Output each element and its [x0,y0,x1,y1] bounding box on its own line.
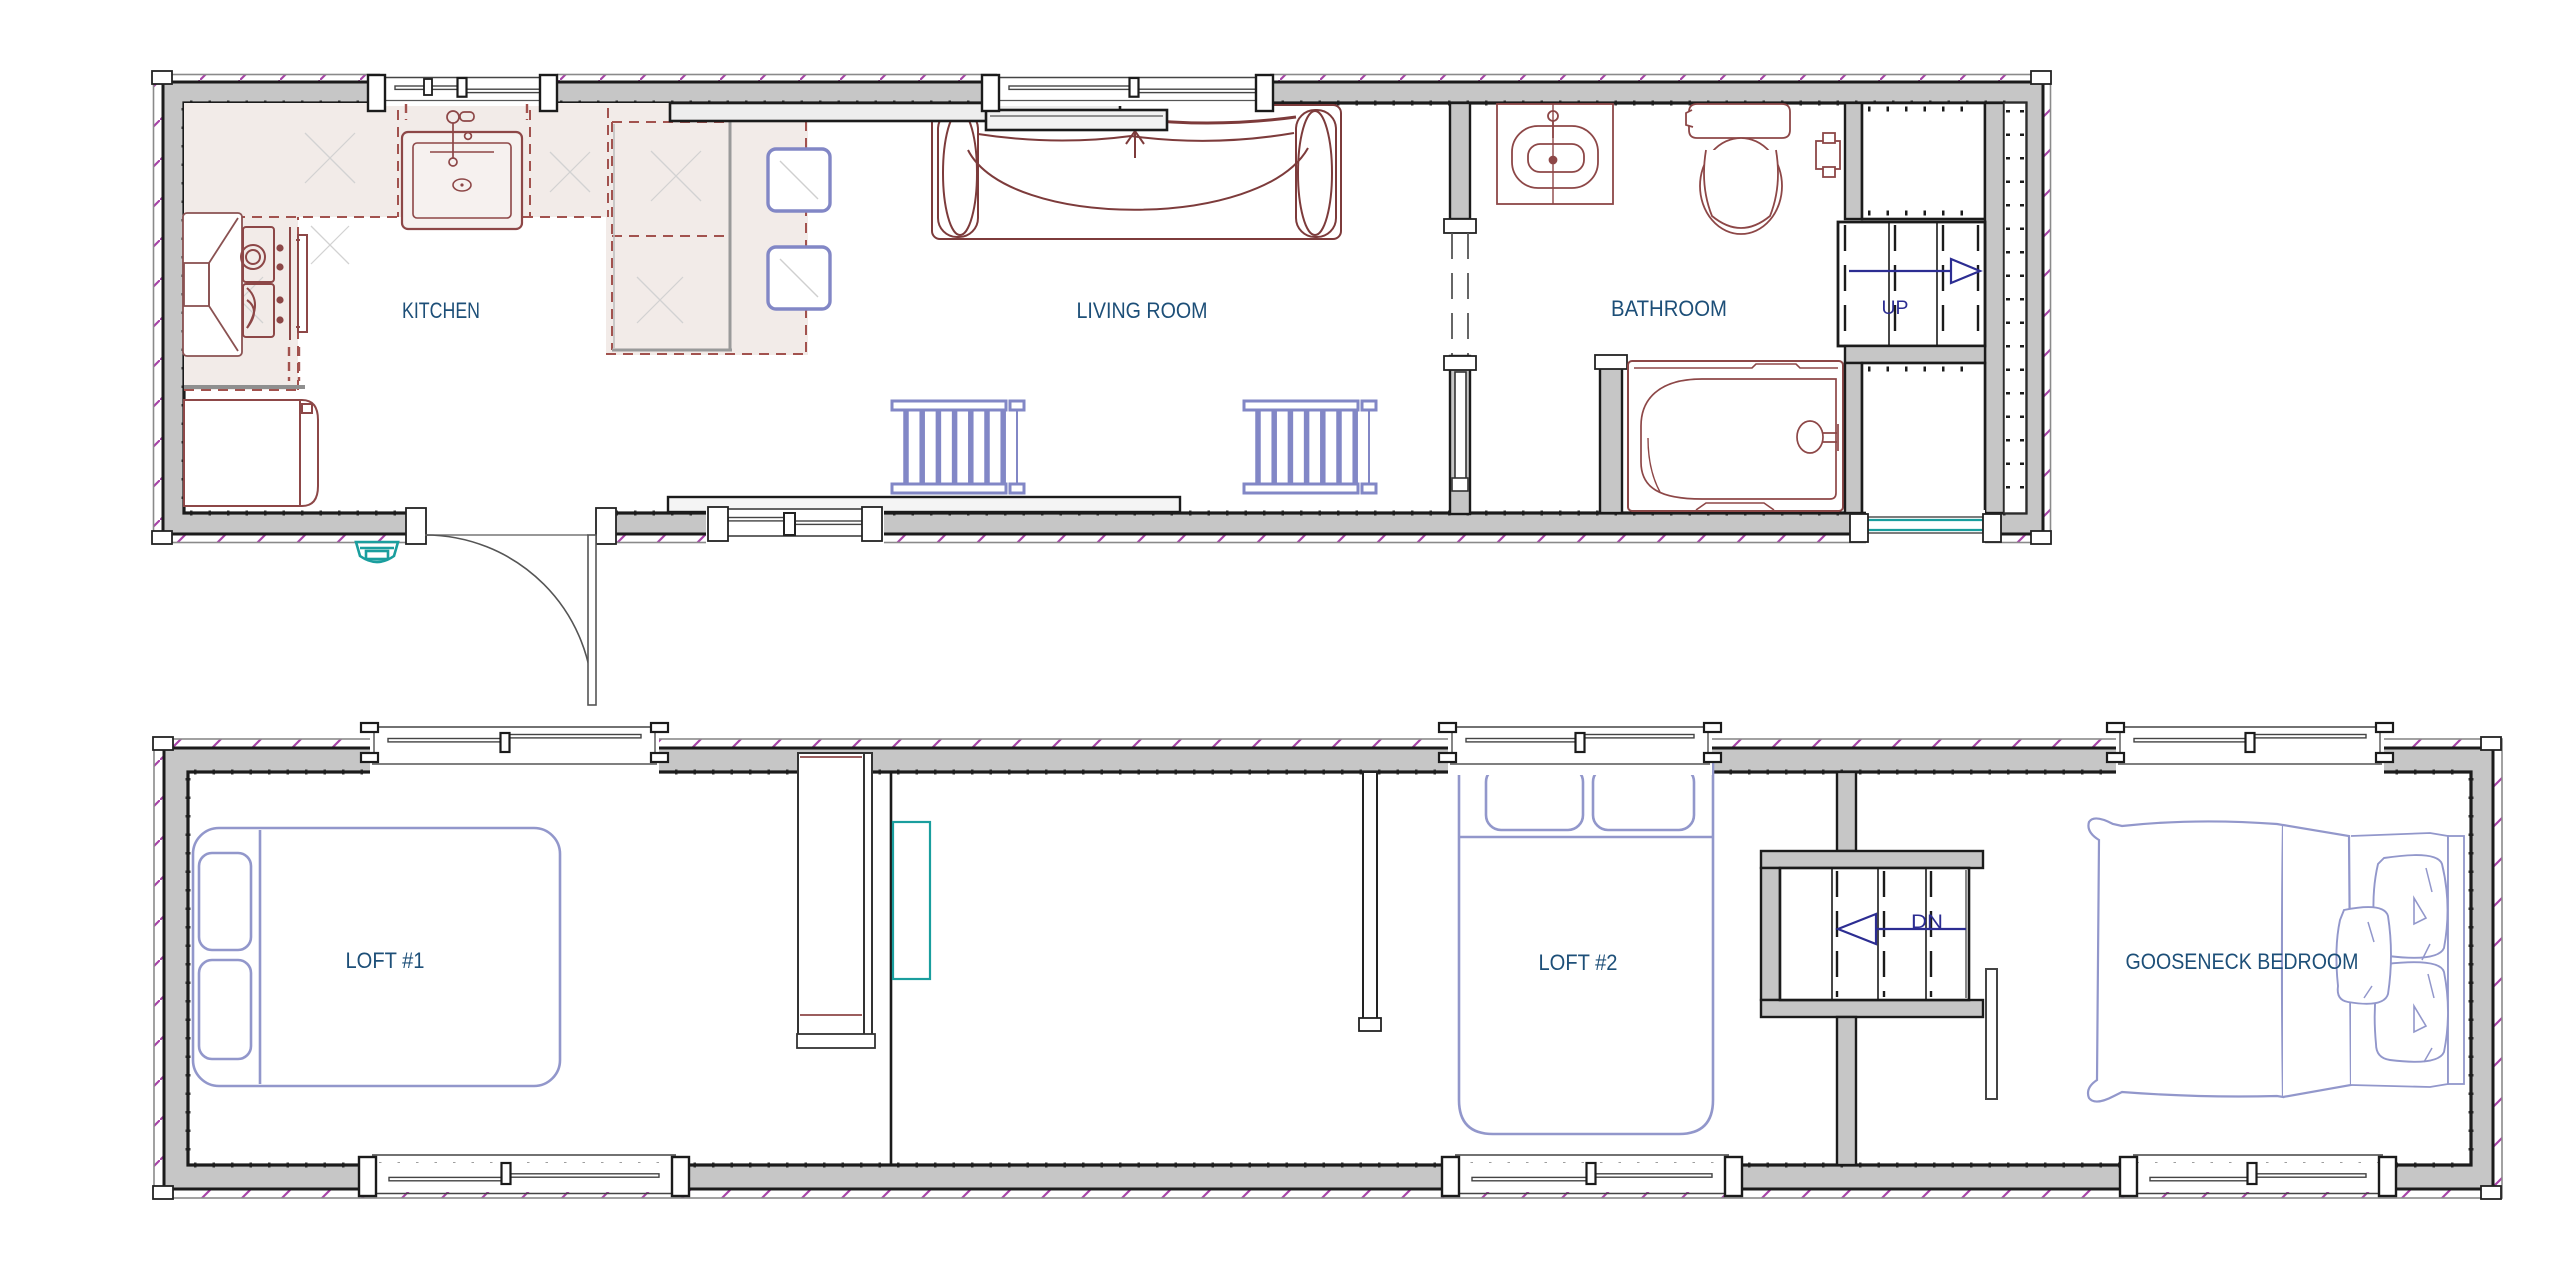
svg-text:UP: UP [1882,298,1909,319]
svg-text:LIVING ROOM: LIVING ROOM [1077,298,1208,323]
svg-text:KITCHEN: KITCHEN [402,298,480,323]
svg-text:GOOSENECK BEDROOM: GOOSENECK BEDROOM [2126,949,2359,974]
svg-text:LOFT #1: LOFT #1 [346,948,425,973]
svg-text:LOFT #2: LOFT #2 [1539,950,1618,975]
svg-text:BATHROOM: BATHROOM [1611,296,1727,321]
svg-text:DN: DN [1911,912,1943,933]
